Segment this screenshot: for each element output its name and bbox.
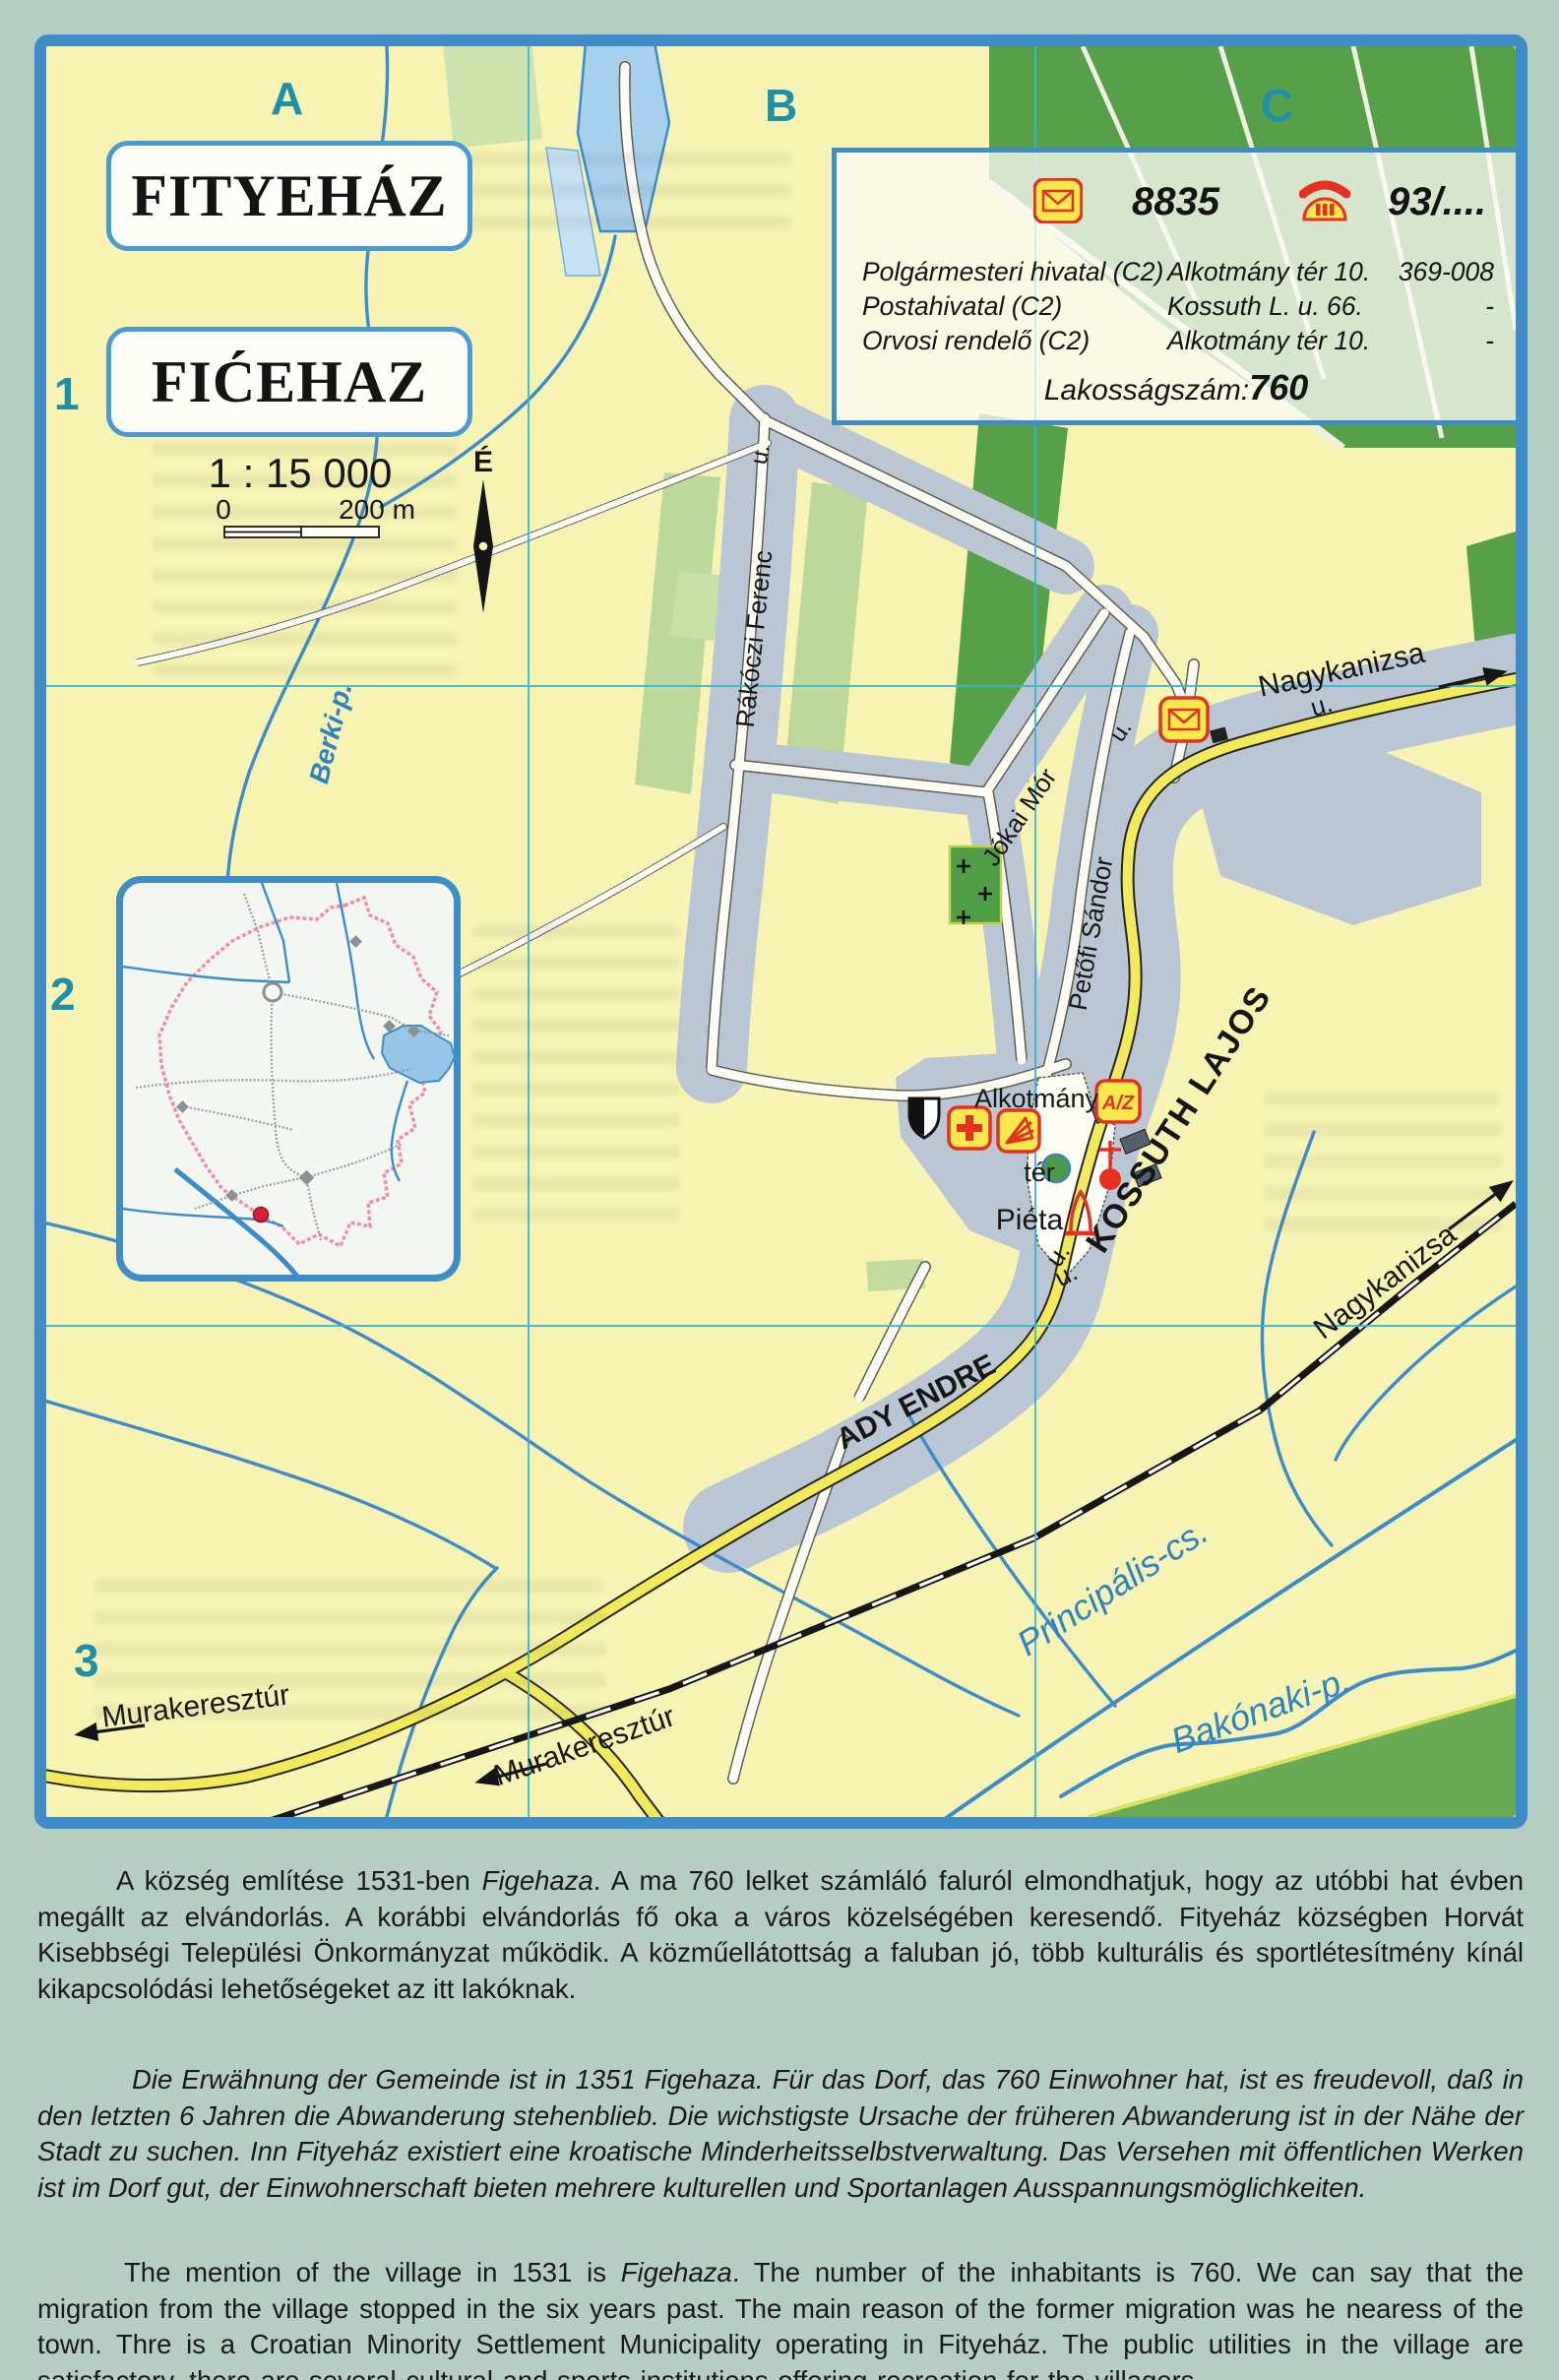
phone-area-code: 93/.... [1388,180,1486,224]
scale-zero: 0 [216,494,231,525]
grid-row-2: 2 [50,968,76,1021]
label-pieta: Piéta [996,1204,1064,1236]
paragraph-german: Die Erwähnung der Gemeinde ist in 1351 F… [37,2062,1524,2206]
post-office-icon [1160,698,1208,741]
entry-phone: - [1376,326,1494,356]
county-inset-map [116,876,461,1282]
scale-end: 200 m [339,494,415,525]
directory-row: Orvosi rendelő (C2) Alkotmány tér 10. - [837,326,1516,357]
paragraph-hungarian: A község említése 1531-ben Figehaza. A m… [37,1863,1524,2007]
atlas-page: A/Z É 1 : 15 000 [0,0,1559,2380]
population-label: Lakosságszám: [1044,374,1249,407]
population-value: 760 [1249,367,1308,407]
scale-bar [224,527,379,537]
entry-name: Postahivatal (C2) [862,291,1062,322]
paragraph-english: The mention of the village in 1531 is Fi… [37,2255,1524,2380]
directory-row: Postahivatal (C2) Kossuth L. u. 66. - [837,291,1516,323]
title-box-hungarian: FITYEHÁZ [106,141,472,251]
grid-row-1: 1 [54,367,80,420]
grid-column-b: B [765,79,797,132]
az-sign-text: A/Z [1101,1093,1135,1114]
town-name-hungarian: FITYEHÁZ [131,162,447,230]
directory-info-box: 8835 93/.... Polgármesteri hivatal (C2) … [832,148,1521,425]
directory-row: Polgármesteri hivatal (C2) Alkotmány tér… [837,257,1516,288]
title-box-croatian: FIĆEHAZ [106,327,472,437]
scale-ratio: 1 : 15 000 [209,450,393,496]
entry-address: Kossuth L. u. 66. [1167,291,1363,322]
inset-town-marker-fityehaz [254,1208,269,1222]
north-letter: É [473,445,493,478]
grid-column-c: C [1261,79,1293,132]
school-fan-icon [998,1110,1039,1152]
town-map: A/Z É 1 : 15 000 [34,34,1528,1829]
entry-name: Orvosi rendelő (C2) [862,326,1090,356]
entry-phone: - [1376,291,1494,322]
az-shop-icon: A/Z [1096,1081,1140,1122]
inset-drawing [123,883,454,1275]
entry-phone: 369-008 [1376,257,1494,287]
description-texts: A község említése 1531-ben Figehaza. A m… [37,1863,1524,2380]
label-ter: tér [1024,1158,1055,1187]
inset-city-junction [264,983,281,1001]
label-alkotmany: Alkotmány [974,1084,1099,1113]
telephone-icon [1299,180,1350,221]
entry-address: Alkotmány tér 10. [1167,326,1370,356]
town-name-croatian: FIĆEHAZ [152,348,427,416]
grid-column-a: A [271,72,303,125]
medical-cross-icon [949,1107,990,1149]
postal-envelope-icon [1033,178,1083,223]
grid-row-3: 3 [74,1634,99,1687]
inset-towns [176,935,420,1202]
population-line: Lakosságszám:760 [837,367,1516,408]
entry-address: Alkotmány tér 10. [1167,257,1370,287]
postal-code: 8835 [1132,180,1219,224]
entry-name: Polgármesteri hivatal (C2) [862,257,1163,287]
